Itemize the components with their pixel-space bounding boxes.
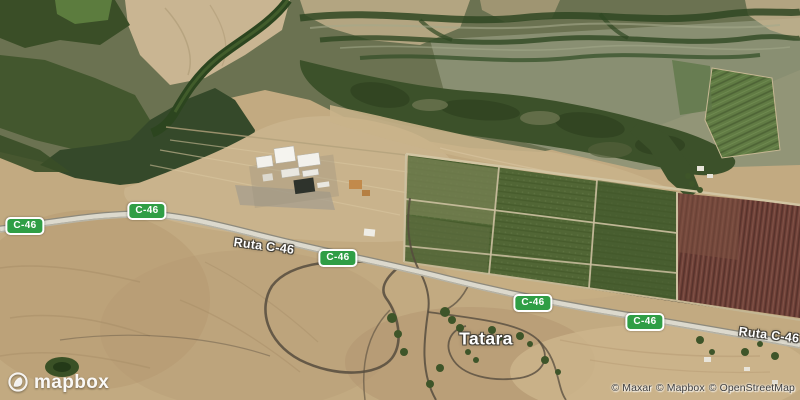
mapbox-logo-icon <box>7 371 29 393</box>
attribution-mapbox-link[interactable]: © Mapbox <box>656 382 705 394</box>
attribution-bar: © Maxar© Mapbox© OpenStreetMap <box>607 382 795 394</box>
attribution-maxar-link[interactable]: © Maxar <box>611 382 652 394</box>
mapbox-logo-text: mapbox <box>34 373 109 392</box>
satellite-imagery <box>0 0 800 400</box>
map-canvas[interactable]: C-46 C-46 C-46 C-46 C-46 Ruta C-46 Ruta … <box>0 0 800 400</box>
mapbox-logo[interactable]: mapbox <box>7 371 109 393</box>
attribution-osm-link[interactable]: © OpenStreetMap <box>709 382 795 394</box>
